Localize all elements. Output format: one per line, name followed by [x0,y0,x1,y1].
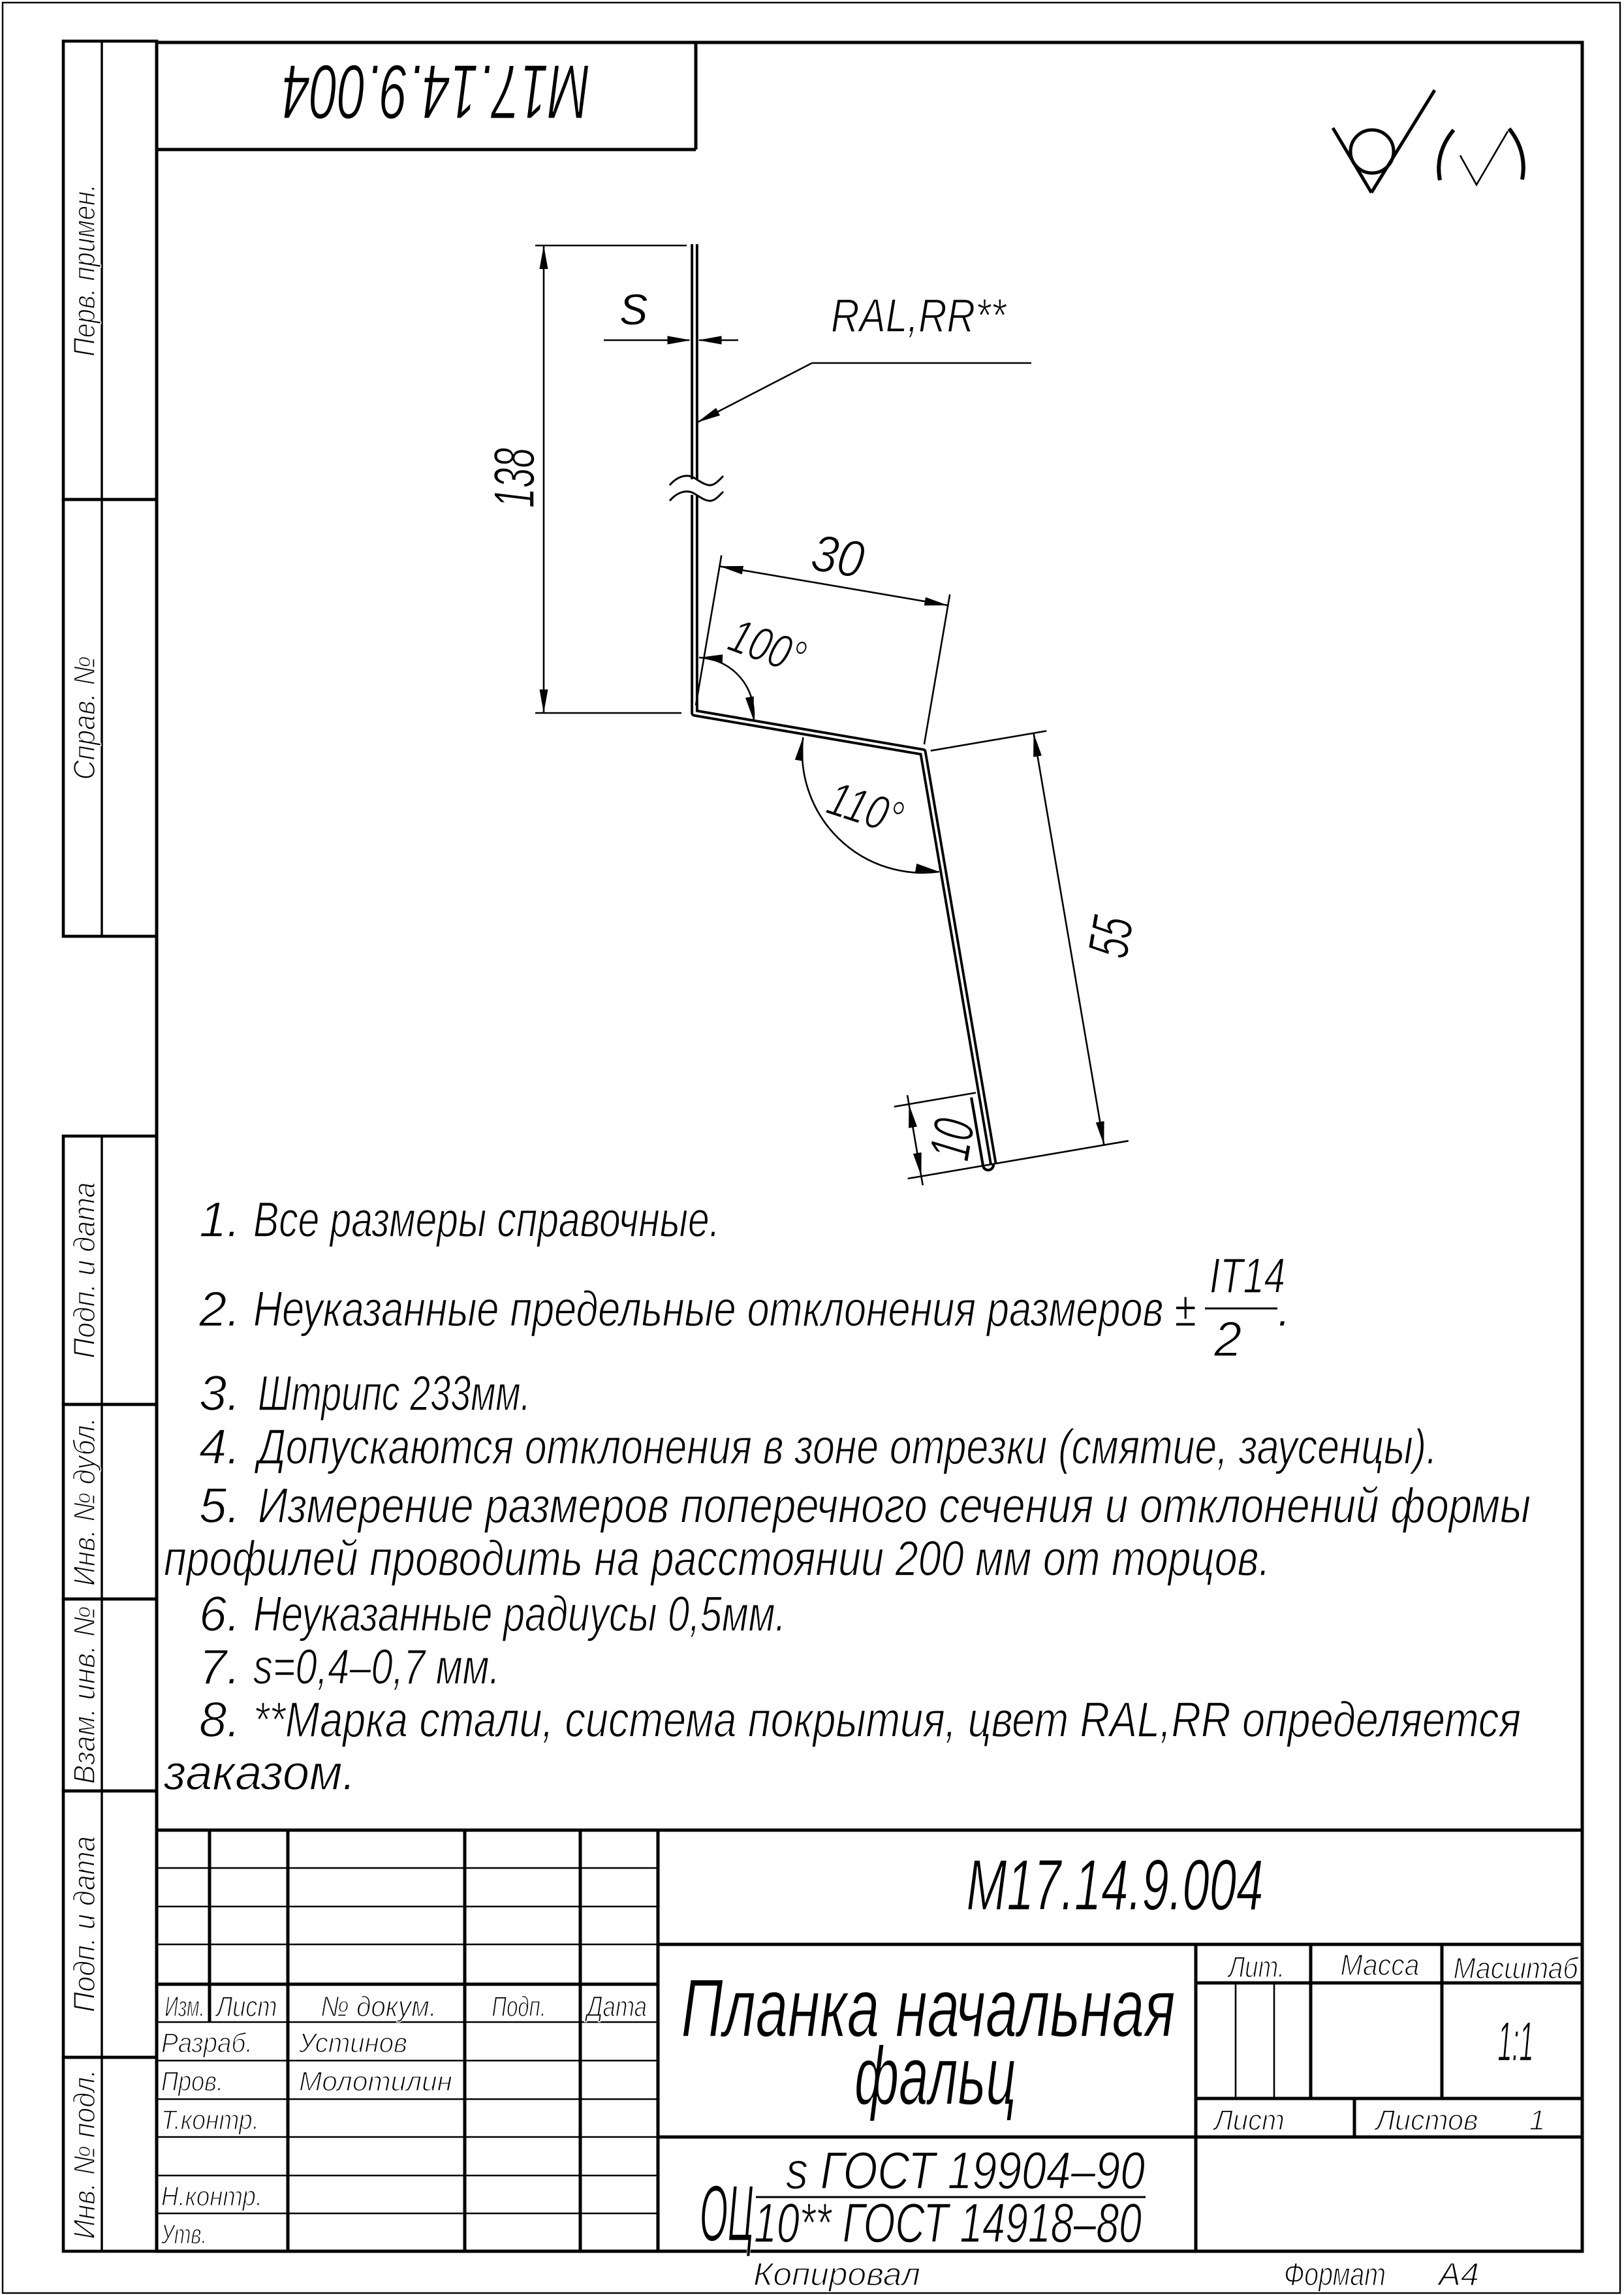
svg-text:ОЦ: ОЦ [700,2169,754,2258]
svg-text:55: 55 [1075,911,1146,962]
svg-text:Копировал: Копировал [753,2257,920,2292]
svg-text:Штрипс 233мм.: Штрипс 233мм. [258,1366,531,1421]
svg-text:IT14: IT14 [1210,1248,1285,1304]
svg-text:s=0,4–0,7 мм.: s=0,4–0,7 мм. [253,1639,500,1695]
svg-text:Листов: Листов [1374,2104,1478,2136]
svg-text:Взам. инв. №: Взам. инв. № [67,1606,101,1784]
svg-text:Масса: Масса [1341,1948,1420,1982]
svg-text:5.: 5. [199,1478,240,1534]
svg-text:М17.14.9.004: М17.14.9.004 [967,1845,1264,1925]
svg-text:1: 1 [1529,2104,1545,2136]
svg-text:Молотилин: Молотилин [299,2066,452,2097]
svg-text:Лист: Лист [215,1991,277,2023]
svg-text:138: 138 [482,448,546,508]
svg-text:Пров.: Пров. [161,2066,223,2097]
svg-text:Лист: Лист [1212,2104,1285,2136]
svg-text:Инв. № подл.: Инв. № подл. [67,2070,101,2240]
svg-text:Перв. примен.: Перв. примен. [67,184,101,356]
svg-text:профилей проводить на расстоян: профилей проводить на расстоянии 200 мм … [164,1531,1270,1587]
svg-text:8.: 8. [199,1692,240,1748]
svg-text:4.: 4. [199,1419,240,1475]
svg-text:Справ. №: Справ. № [67,656,101,780]
svg-text:Все размеры справочные.: Все размеры справочные. [253,1192,720,1248]
svg-text:№ докум.: № докум. [320,1991,437,2023]
svg-text:Утв.: Утв. [161,2219,207,2249]
svg-text:**Марка стали, система покрыти: **Марка стали, система покрытия, цвет RA… [253,1692,1521,1748]
svg-text:Т.контр.: Т.контр. [161,2104,259,2135]
svg-text:Лит.: Лит. [1227,1950,1285,1984]
svg-text:RAL,RR**: RAL,RR** [831,290,1007,342]
svg-text:.: . [1277,1282,1291,1337]
svg-text:заказом.: заказом. [163,1745,356,1801]
svg-text:10** ГОСТ 14918–80: 10** ГОСТ 14918–80 [754,2192,1142,2255]
svg-text:Подп. и дата: Подп. и дата [67,1182,101,1359]
svg-text:Изм.: Изм. [165,1991,205,2023]
svg-text:6.: 6. [199,1587,240,1642]
svg-text:Устинов: Устинов [298,2027,407,2058]
svg-text:2: 2 [1213,1312,1241,1367]
svg-text:s ГОСТ 19904–90: s ГОСТ 19904–90 [786,2142,1145,2200]
svg-text:М17.14.9.004: М17.14.9.004 [282,48,590,135]
svg-text:А4: А4 [1437,2257,1479,2292]
svg-text:Неуказанные радиусы 0,5мм.: Неуказанные радиусы 0,5мм. [253,1587,786,1642]
svg-text:7.: 7. [199,1639,240,1695]
svg-text:Масштаб: Масштаб [1454,1952,1580,1985]
svg-text:Неуказанные предельные отклоне: Неуказанные предельные отклонения размер… [253,1282,1196,1337]
svg-text:Инв. № дубл.: Инв. № дубл. [67,1417,101,1586]
svg-text:Дата: Дата [584,1991,647,2023]
svg-text:2.: 2. [198,1282,240,1337]
svg-text:Подп.: Подп. [492,1991,546,2023]
svg-text:фальц: фальц [854,2030,1016,2122]
svg-text:Допускаются отклонения в зоне: Допускаются отклонения в зоне отрезки (с… [254,1419,1437,1475]
svg-text:3.: 3. [199,1366,240,1421]
svg-text:30: 30 [807,523,869,589]
svg-text:1.: 1. [199,1192,240,1248]
svg-text:1:1: 1:1 [1498,2011,1534,2073]
svg-text:Н.контр.: Н.контр. [161,2181,262,2211]
svg-text:Разраб.: Разраб. [161,2027,253,2058]
svg-text:s: s [620,272,649,337]
svg-text:Измерение размеров поперечного: Измерение размеров поперечного сечения и… [258,1478,1531,1534]
svg-text:Формат: Формат [1284,2257,1386,2292]
svg-text:Подп. и дата: Подп. и дата [67,1836,101,2012]
